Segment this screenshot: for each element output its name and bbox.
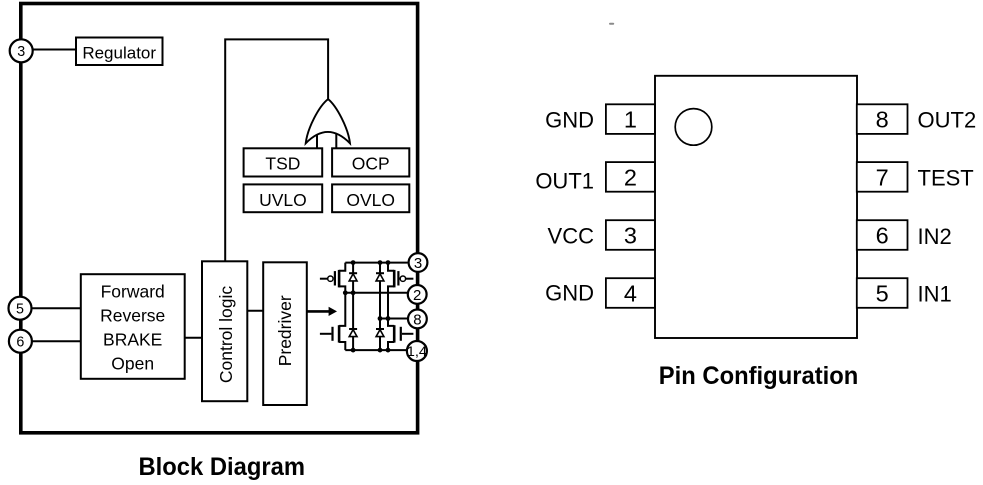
svg-text:2: 2 [413,287,421,304]
svg-text:6: 6 [16,335,24,351]
svg-text:7: 7 [876,164,889,190]
svg-text:Pin Configuration: Pin Configuration [659,362,859,390]
svg-text:3: 3 [414,255,422,272]
svg-text:3: 3 [17,44,25,60]
svg-text:Forward: Forward [101,282,165,302]
svg-text:UVLO: UVLO [259,190,307,210]
svg-text:Open: Open [111,353,154,373]
svg-text:VCC: VCC [548,223,595,248]
svg-text:8: 8 [413,311,421,328]
svg-text:Reverse: Reverse [100,306,165,326]
svg-text:5: 5 [16,301,24,317]
svg-text:Block Diagram: Block Diagram [139,453,306,481]
svg-text:IN1: IN1 [918,281,952,306]
svg-text:Control logic: Control logic [216,286,236,384]
svg-text:TSD: TSD [265,154,300,174]
svg-text:OUT1: OUT1 [535,169,594,194]
svg-text:OCP: OCP [352,154,390,174]
svg-text:5: 5 [876,280,889,306]
svg-text:BRAKE: BRAKE [103,329,162,349]
svg-text:GND: GND [545,281,594,306]
svg-text:8: 8 [876,107,889,133]
svg-text:TEST: TEST [918,166,974,191]
svg-text:1,4: 1,4 [407,343,428,359]
svg-text:1: 1 [624,107,637,133]
svg-text:GND: GND [545,107,594,132]
svg-text:OVLO: OVLO [346,190,395,210]
svg-text:2: 2 [624,164,637,190]
svg-text:6: 6 [876,222,889,248]
svg-text:Predriver: Predriver [275,295,295,366]
svg-text:3: 3 [624,222,637,248]
svg-text:IN2: IN2 [918,224,952,249]
svg-text:Regulator: Regulator [82,43,156,62]
svg-text:4: 4 [624,280,637,306]
svg-text:OUT2: OUT2 [918,108,977,133]
